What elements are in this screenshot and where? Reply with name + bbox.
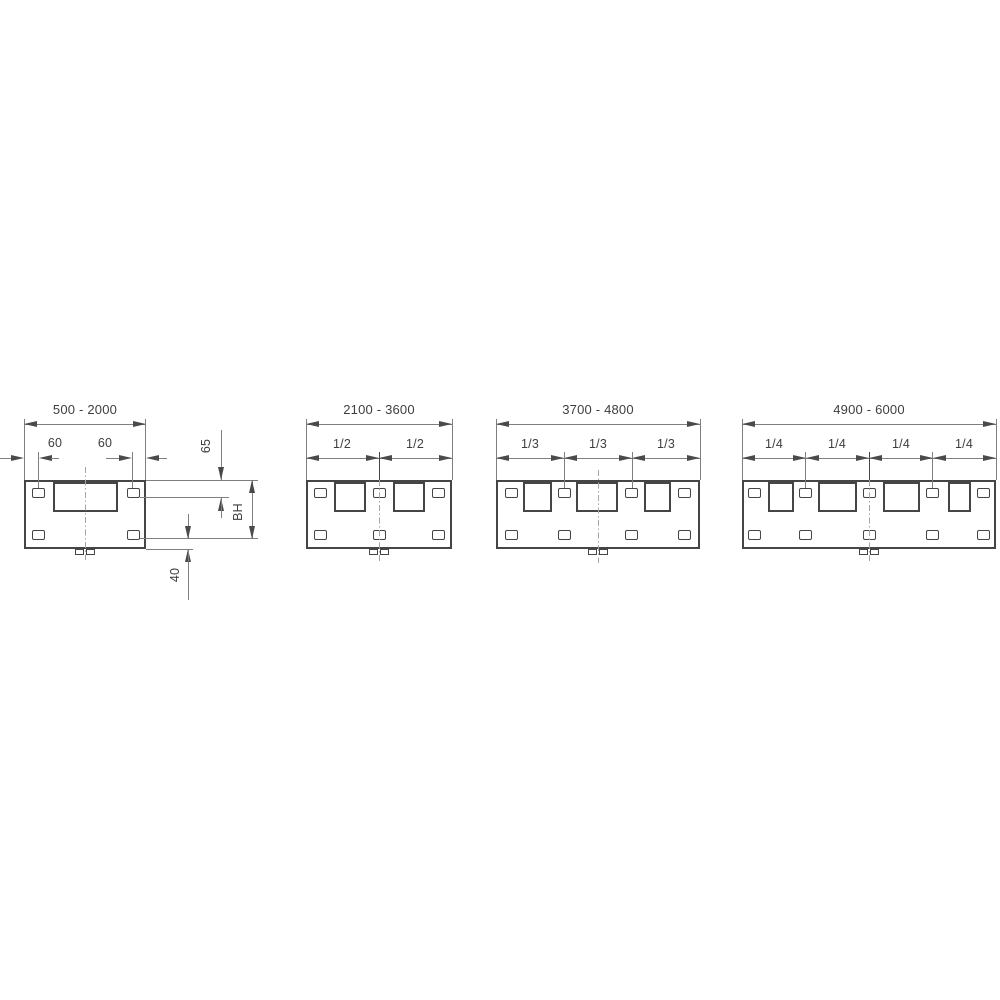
dim-label-offset-left: 60 — [40, 436, 70, 451]
dim-label-range: 2100 - 3600 — [329, 402, 429, 417]
dim-arrow — [24, 421, 37, 427]
dim-label-fraction: 1/4 — [942, 437, 986, 452]
dim-arrow — [185, 526, 191, 539]
fixing-slot-top — [678, 488, 691, 498]
dim-label-mounting-height: BH — [231, 497, 245, 527]
fixing-slot-top — [314, 488, 327, 498]
fixing-slot-top — [505, 488, 518, 498]
dim-arrow — [742, 455, 755, 461]
dim-arrow — [687, 455, 700, 461]
fixing-slot-top — [32, 488, 45, 498]
dim-arrow — [983, 455, 996, 461]
dim-label-fraction: 1/3 — [644, 437, 688, 452]
extension-line — [24, 419, 25, 480]
bottom-tab — [859, 549, 868, 555]
extension-line — [996, 419, 997, 480]
dimension-line — [188, 549, 189, 600]
panel-cutout — [334, 482, 366, 512]
dim-arrow — [39, 455, 52, 461]
dim-arrow — [806, 455, 819, 461]
panel-cutout — [644, 482, 672, 512]
fixing-slot-top — [127, 488, 140, 498]
fixing-slot-bottom — [558, 530, 571, 540]
fixing-slot-bottom — [32, 530, 45, 540]
dim-label-range: 3700 - 4800 — [548, 402, 648, 417]
fixing-slot-bottom — [977, 530, 990, 540]
panel-cutout — [768, 482, 794, 512]
extension-line — [452, 419, 453, 480]
dimension-line — [51, 458, 59, 459]
fixing-slot-bottom — [799, 530, 812, 540]
extension-line — [700, 419, 701, 480]
dim-arrow — [379, 455, 392, 461]
dim-arrow — [551, 455, 564, 461]
fixing-slot-bottom — [505, 530, 518, 540]
dim-label-fraction: 1/2 — [320, 437, 364, 452]
dim-arrow — [856, 455, 869, 461]
centerline — [869, 480, 870, 563]
fixing-slot-bottom — [314, 530, 327, 540]
fixing-slot-top — [432, 488, 445, 498]
extension-line — [140, 497, 229, 498]
bottom-tab — [369, 549, 378, 555]
dimension-line — [24, 424, 146, 425]
technical-diagram: 500 - 2000 2100 - 3600 3700 - 4800 4900 … — [0, 0, 1000, 1000]
dim-arrow — [983, 421, 996, 427]
bottom-tab — [588, 549, 597, 555]
dimension-line — [496, 458, 700, 459]
bottom-tab — [870, 549, 879, 555]
dim-label-fraction: 1/4 — [815, 437, 859, 452]
dim-label-slot-to-bottom: 40 — [168, 560, 182, 590]
extension-line — [306, 419, 307, 480]
centerline — [85, 467, 86, 560]
dimension-line — [742, 424, 996, 425]
panel-cutout — [883, 482, 920, 512]
extension-line — [146, 480, 258, 481]
extension-line — [742, 419, 743, 480]
dim-arrow — [439, 455, 452, 461]
dim-arrow — [496, 421, 509, 427]
dim-label-offset-right: 60 — [90, 436, 120, 451]
dim-arrow — [933, 455, 946, 461]
dim-arrow — [119, 455, 132, 461]
dim-label-range: 4900 - 6000 — [819, 402, 919, 417]
dim-arrow — [742, 421, 755, 427]
dimension-line — [496, 424, 700, 425]
dim-label-fraction: 1/4 — [879, 437, 923, 452]
fixing-slot-bottom — [748, 530, 761, 540]
panel-cutout — [53, 482, 118, 512]
dimension-line — [306, 424, 452, 425]
extension-line — [145, 419, 146, 480]
dim-arrow — [306, 455, 319, 461]
panel-cutout — [393, 482, 425, 512]
fixing-slot-top — [748, 488, 761, 498]
dim-arrow — [249, 480, 255, 493]
dim-arrow — [687, 421, 700, 427]
dim-arrow — [146, 455, 159, 461]
centerline — [598, 470, 599, 563]
panel-cutout — [818, 482, 857, 512]
fixing-slot-bottom — [678, 530, 691, 540]
dim-label-range: 500 - 2000 — [35, 402, 135, 417]
dimension-line — [221, 498, 222, 518]
fixing-slot-top — [558, 488, 571, 498]
dim-arrow — [11, 455, 24, 461]
extension-line — [140, 538, 258, 539]
dim-arrow — [632, 455, 645, 461]
fixing-slot-bottom — [127, 530, 140, 540]
dim-arrow — [619, 455, 632, 461]
fixing-slot-bottom — [926, 530, 939, 540]
dimension-line — [159, 458, 168, 459]
bottom-tab — [380, 549, 389, 555]
fixing-slot-top — [926, 488, 939, 498]
dimension-line — [106, 458, 120, 459]
dim-label-fraction: 1/4 — [752, 437, 796, 452]
dim-arrow — [306, 421, 319, 427]
fixing-slot-top — [977, 488, 990, 498]
dim-label-fraction: 1/3 — [508, 437, 552, 452]
dim-arrow — [564, 455, 577, 461]
dim-arrow — [133, 421, 146, 427]
dim-arrow — [496, 455, 509, 461]
dim-arrow — [869, 455, 882, 461]
bottom-tab — [86, 549, 95, 555]
bottom-tab — [599, 549, 608, 555]
dim-label-top-to-slot: 65 — [199, 431, 213, 461]
dim-arrow — [249, 526, 255, 539]
panel-cutout — [948, 482, 971, 512]
fixing-slot-top — [625, 488, 638, 498]
dim-arrow — [218, 467, 224, 480]
fixing-slot-top — [799, 488, 812, 498]
fixing-slot-bottom — [432, 530, 445, 540]
dim-arrow — [439, 421, 452, 427]
dim-arrow — [920, 455, 933, 461]
extension-line — [496, 419, 497, 480]
dim-label-fraction: 1/2 — [393, 437, 437, 452]
dim-arrow — [793, 455, 806, 461]
dim-label-fraction: 1/3 — [576, 437, 620, 452]
fixing-slot-bottom — [625, 530, 638, 540]
panel-cutout — [523, 482, 552, 512]
dim-arrow — [366, 455, 379, 461]
centerline — [379, 480, 380, 563]
bottom-tab — [75, 549, 84, 555]
